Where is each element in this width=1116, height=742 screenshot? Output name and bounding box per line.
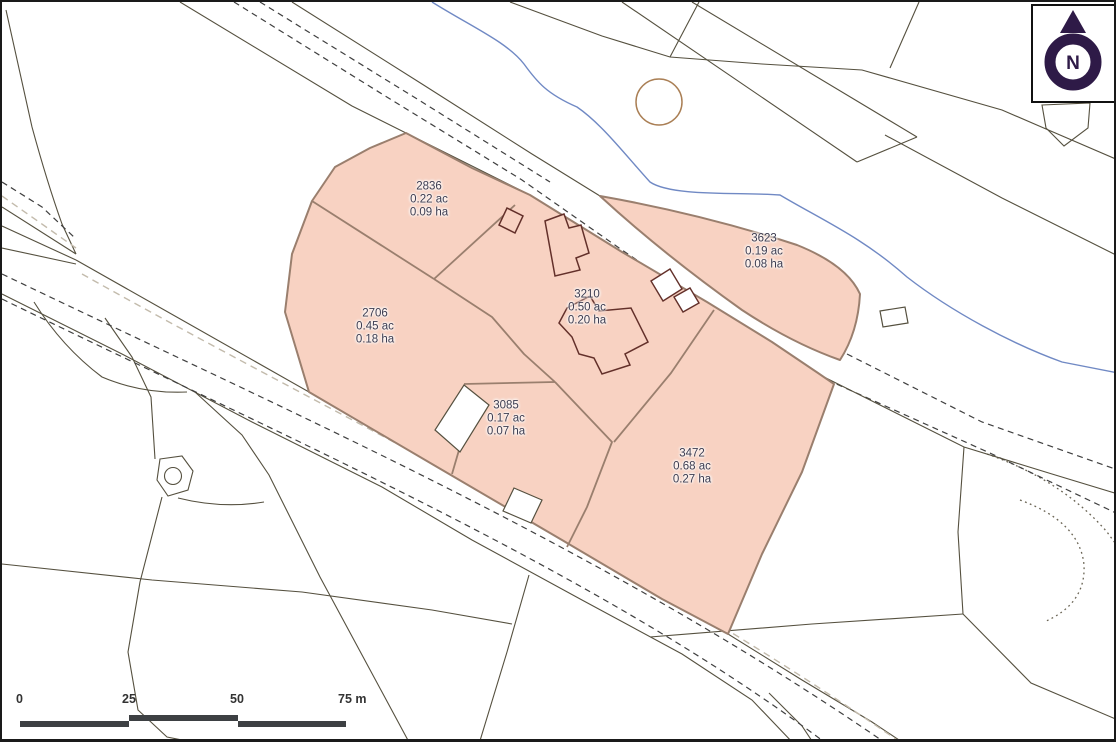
parcel-label: 2706 0.45 ac 0.18 ha <box>356 308 394 347</box>
north-arrow-icon: N <box>1033 6 1114 101</box>
scale-bar: 0 25 50 75 m <box>2 686 422 736</box>
pond-circle <box>165 468 182 485</box>
parcel-label: 3623 0.19 ac 0.08 ha <box>745 233 783 272</box>
parcel-acres: 0.22 ac <box>410 194 448 207</box>
scale-segment <box>129 715 238 721</box>
parcel-id: 3210 <box>568 289 606 302</box>
scale-segment <box>20 721 129 727</box>
scale-segment <box>238 721 346 727</box>
parcel-hectares: 0.18 ha <box>356 334 394 347</box>
parcel-acres: 0.68 ac <box>673 461 711 474</box>
parcel-acres: 0.45 ac <box>356 321 394 334</box>
parcel-hectares: 0.09 ha <box>410 207 448 220</box>
parcel-id: 2706 <box>356 308 394 321</box>
parcel-acres: 0.19 ac <box>745 246 783 259</box>
parcel-label: 3085 0.17 ac 0.07 ha <box>487 400 525 439</box>
parcel-map <box>2 2 1116 742</box>
parcel-hectares: 0.07 ha <box>487 426 525 439</box>
tree-circle <box>636 79 682 125</box>
highlighted-parcels[interactable] <box>285 133 860 634</box>
scale-tick: 25 <box>122 692 136 706</box>
parcel-hectares: 0.08 ha <box>745 259 783 272</box>
parcel-acres: 0.17 ac <box>487 413 525 426</box>
building-outline <box>880 307 908 327</box>
parcel-hectares: 0.20 ha <box>568 315 606 328</box>
parcel-id: 3623 <box>745 233 783 246</box>
parcel-label: 3472 0.68 ac 0.27 ha <box>673 448 711 487</box>
north-label: N <box>1066 53 1080 74</box>
north-arrow: N <box>1031 4 1116 103</box>
minor-road <box>2 182 76 264</box>
scale-tick: 50 <box>230 692 244 706</box>
pond-outline <box>157 456 193 496</box>
scale-tick: 0 <box>16 692 23 706</box>
map-canvas[interactable]: 2836 0.22 ac 0.09 ha 3623 0.19 ac 0.08 h… <box>0 0 1116 742</box>
parcel-id: 3472 <box>673 448 711 461</box>
parcel-hectares: 0.27 ha <box>673 474 711 487</box>
parcel-label: 2836 0.22 ac 0.09 ha <box>410 181 448 220</box>
parcel-acres: 0.50 ac <box>568 302 606 315</box>
parcel-id: 2836 <box>410 181 448 194</box>
scale-tick: 75 m <box>338 692 367 706</box>
parcel-label: 3210 0.50 ac 0.20 ha <box>568 289 606 328</box>
parcel-id: 3085 <box>487 400 525 413</box>
parcel-shape-main-cluster[interactable] <box>285 133 834 634</box>
